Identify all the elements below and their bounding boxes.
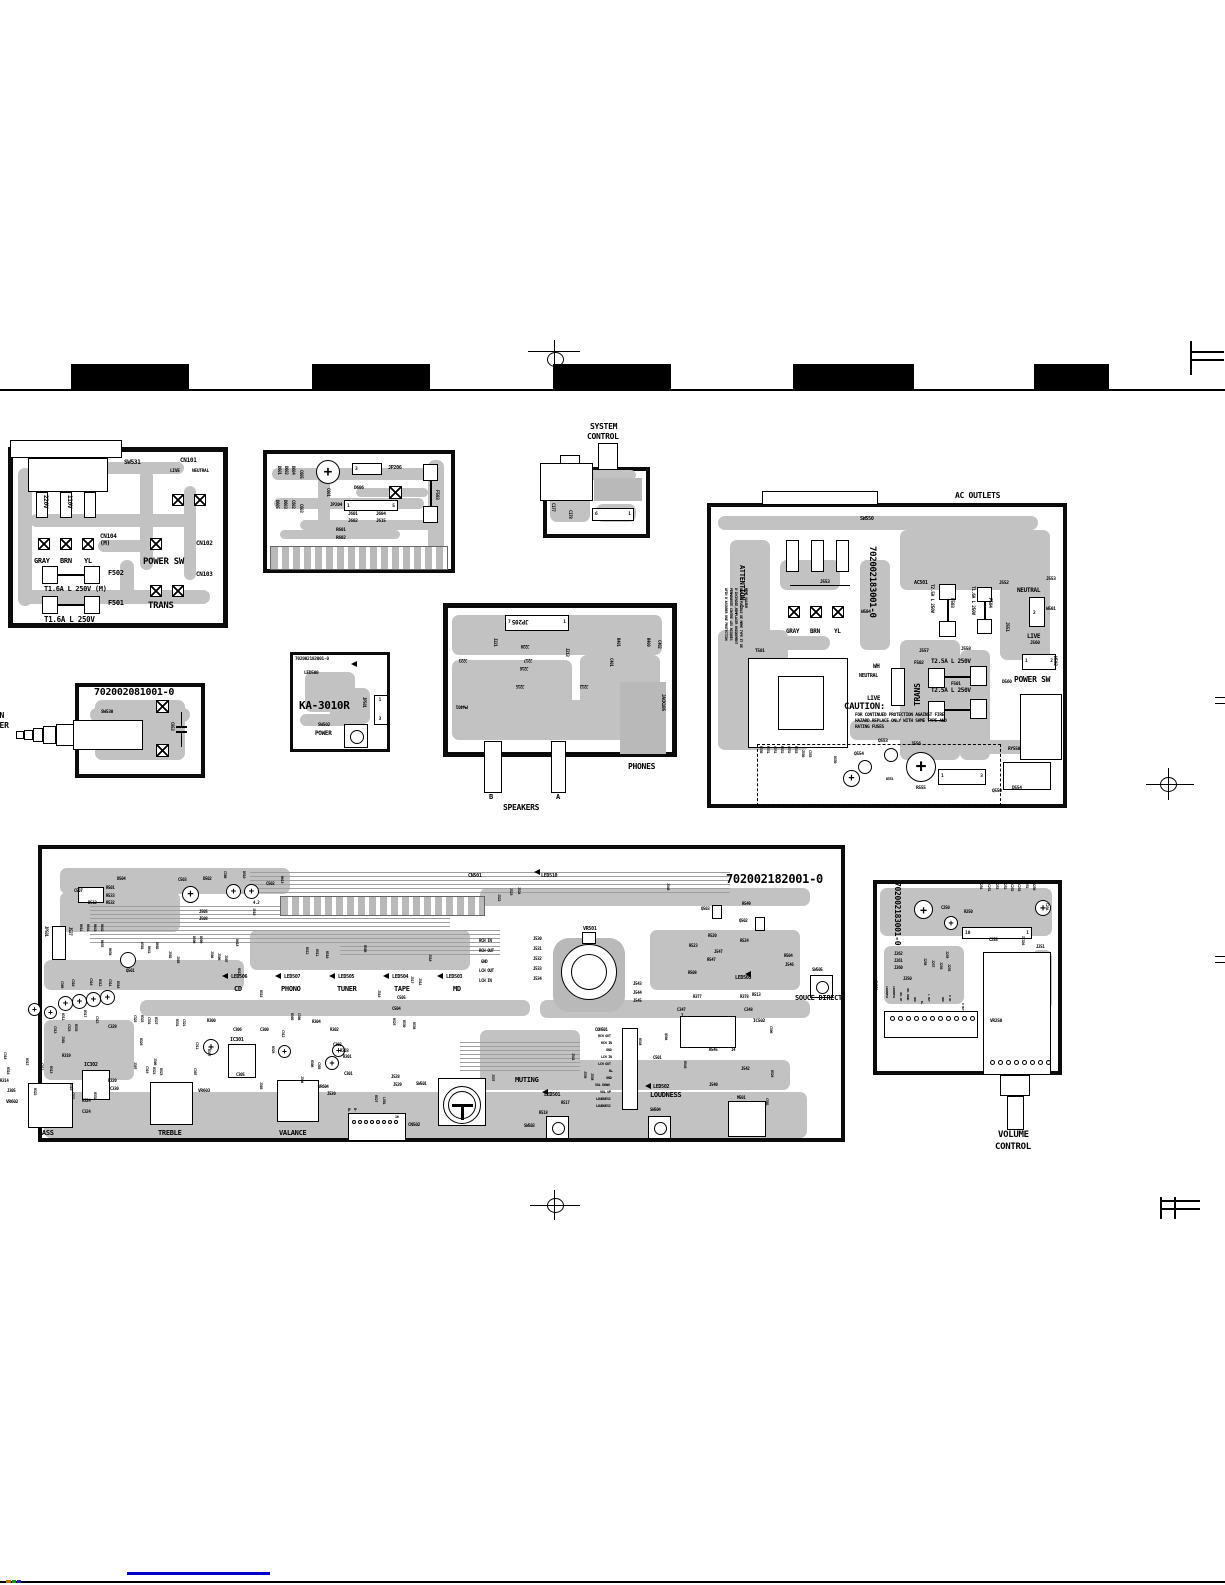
- component-label: R323: [159, 1068, 163, 1075]
- trace-bus: [460, 1042, 580, 1072]
- component-label: Q502: [739, 919, 747, 923]
- component-label: R550: [759, 746, 763, 753]
- circle-outline: [571, 954, 607, 990]
- component-label: JP501: [362, 697, 366, 708]
- component-label: J527: [68, 927, 72, 935]
- component-label: GND: [913, 997, 916, 1002]
- component-label: R523: [689, 944, 697, 948]
- component-label: R401: [616, 638, 620, 646]
- component-label: R303: [340, 1049, 348, 1053]
- mounting-pad-icon: [832, 606, 844, 618]
- component-label: CN103: [196, 572, 213, 578]
- component-label: J532: [533, 957, 541, 961]
- connector-pin-number: 1: [1025, 659, 1028, 664]
- component-label: POWER: [315, 731, 332, 737]
- component-outline: [762, 491, 878, 505]
- component-label: YL: [84, 558, 92, 565]
- component-label: T1.6A L 250V (M): [44, 586, 107, 593]
- capacitor-icon: +: [100, 990, 115, 1005]
- capacitor-icon: +: [226, 884, 241, 899]
- connector-pin-number: 6: [595, 512, 598, 517]
- mounting-pad-icon: [156, 700, 169, 713]
- component-outline: [891, 668, 905, 706]
- led-icon: [222, 973, 228, 979]
- mounting-pad-icon: [150, 585, 162, 597]
- component-label: D601: [277, 466, 281, 474]
- component-label: SW550: [860, 517, 874, 522]
- component-label: F501: [108, 600, 124, 607]
- component-outline: [84, 566, 100, 584]
- edge-connector: [270, 546, 448, 570]
- component-outline: [56, 724, 74, 746]
- component-label: J223: [459, 658, 467, 662]
- label-phones: PHONES: [628, 763, 655, 771]
- component-label: J514: [418, 978, 422, 985]
- component-label: J516: [377, 990, 381, 997]
- component-label: R602: [155, 942, 159, 949]
- component-label: J541: [571, 1053, 575, 1060]
- component-outline: [970, 699, 987, 719]
- component-outline: [423, 464, 438, 481]
- component-label: B+: [920, 1001, 923, 1004]
- component-label: R546: [683, 1061, 687, 1068]
- component-label: VOL DOWN: [595, 1084, 609, 1088]
- component-label: LED510: [541, 874, 557, 879]
- component-label: R526: [770, 1070, 774, 1077]
- component-label: J529: [393, 1083, 401, 1087]
- component-label: D501: [140, 942, 144, 949]
- board-number: 702002081001-0: [94, 688, 174, 698]
- component-label: LIVE: [1027, 634, 1040, 640]
- mounting-pad-icon: [389, 486, 402, 499]
- component-label: CN102: [196, 541, 213, 547]
- component-label: LOUDNESS: [885, 986, 888, 998]
- model-name: KA-3010R: [299, 700, 350, 711]
- connector-pin-number: 3: [355, 467, 358, 472]
- component-label: D560: [1002, 681, 1012, 686]
- component-label: R306: [310, 1060, 314, 1067]
- led-icon: [329, 973, 335, 979]
- pin-dot: [364, 1120, 368, 1124]
- component-label: J253: [995, 882, 999, 889]
- component-label: LED501: [544, 1093, 560, 1098]
- copper-trace: [30, 514, 192, 527]
- component-label: J531: [533, 947, 541, 951]
- component-label: R509: [363, 945, 367, 952]
- board-number: 702002183001-0: [893, 882, 901, 945]
- component-label: R OUT: [961, 1003, 964, 1011]
- component-label: R511: [315, 949, 319, 956]
- copper-trace: [318, 476, 330, 538]
- pin-dot: [388, 1120, 392, 1124]
- connector: 3: [352, 463, 382, 475]
- rule-line: [1160, 1208, 1200, 1210]
- push-switch: [648, 1116, 671, 1139]
- component-label: R636: [108, 948, 112, 955]
- circle-outline: [858, 760, 872, 774]
- component-label: JP501: [44, 926, 48, 937]
- component-label: J217: [524, 658, 532, 662]
- component-label: Q550: [992, 790, 1002, 795]
- component-label: (M): [100, 541, 110, 547]
- component-label: JP204: [330, 504, 342, 509]
- rule-line: [127, 1572, 270, 1575]
- component-label: R311: [61, 1013, 65, 1020]
- component-label: W502: [1052, 656, 1057, 666]
- component-label: J537: [491, 1074, 495, 1081]
- rule-line: [58, 574, 84, 576]
- rule-line: [12, 1580, 16, 1583]
- led-icon: [383, 973, 389, 979]
- component-label: 7: [681, 1014, 683, 1018]
- component-label: J558: [961, 648, 971, 653]
- component-label: IC301: [230, 1038, 244, 1043]
- component-label: C329: [108, 1025, 116, 1029]
- component-label: R251: [1025, 881, 1029, 888]
- component-label: R516: [259, 990, 263, 997]
- label-bass: BASS: [38, 1130, 54, 1137]
- component-outline: [10, 440, 122, 458]
- capacitor-icon: +: [28, 1003, 41, 1016]
- component-label: R400: [646, 638, 650, 646]
- connector: 13: [938, 769, 986, 785]
- component-label: R538: [412, 1022, 416, 1029]
- component-label: C506: [769, 1026, 773, 1033]
- component-label: J528: [391, 1075, 399, 1079]
- component-label: J216: [520, 666, 528, 670]
- component-label: J262: [894, 952, 902, 956]
- copper-trace: [770, 636, 830, 650]
- component-outline: [1000, 1075, 1030, 1096]
- component-label: D250: [1032, 883, 1036, 890]
- component-label: 4.2: [253, 901, 259, 905]
- rule-line: [1190, 341, 1192, 375]
- connector-pin-number: 1: [628, 512, 631, 517]
- component-outline: [582, 932, 596, 944]
- component-label: C314: [108, 979, 112, 986]
- rule-line: [6, 1580, 11, 1583]
- component-label: R641: [147, 946, 151, 953]
- component-label: NEUTRAL: [1017, 588, 1040, 594]
- component-label: R314: [0, 1079, 8, 1083]
- component-label: RCH OUT: [479, 949, 494, 953]
- component-label: R518: [539, 1111, 547, 1115]
- component-label: C402: [657, 640, 661, 648]
- component-label: LCH OUT: [479, 969, 494, 973]
- component-label: R301: [343, 1055, 351, 1059]
- caution-line-1: FOR CONTINUED PROTECTION AGAINST FIRE: [855, 714, 944, 719]
- component-label: LED505: [735, 976, 751, 981]
- label-volume-control: VOLUME: [998, 1131, 1029, 1140]
- component-label: R327: [154, 1017, 158, 1024]
- component-label: C301: [344, 1072, 352, 1076]
- component-outline: [680, 1016, 736, 1048]
- mounting-pad-icon: [788, 606, 800, 618]
- component-label: C317: [40, 1063, 44, 1070]
- component-label: C502: [266, 882, 274, 886]
- component-label: D554: [1012, 787, 1022, 792]
- component-label: C552: [787, 746, 791, 753]
- component-label: C331: [147, 1017, 151, 1024]
- component-label: A: [556, 794, 560, 801]
- rule-line: [554, 340, 555, 380]
- component-label: C325: [133, 1015, 137, 1022]
- component-label: J524: [517, 887, 521, 894]
- component-label: R304: [312, 1020, 320, 1024]
- component-label: SW501: [416, 1082, 427, 1086]
- component-label: CON501: [595, 1028, 608, 1032]
- component-outline: [43, 726, 56, 744]
- component-label: CN101: [180, 458, 197, 464]
- label-trans: TRANS: [148, 602, 174, 611]
- component-label: R527: [374, 1095, 378, 1102]
- component-label: CONTROL: [587, 433, 619, 441]
- component-label: R525: [392, 1018, 396, 1025]
- component-label: T2.5A L 250V: [929, 584, 934, 613]
- pin-dot: [990, 1060, 995, 1065]
- component-outline: [928, 668, 945, 688]
- component-label: C551: [773, 746, 777, 753]
- component-label: J551: [1004, 622, 1009, 632]
- component-label: R329: [271, 1046, 275, 1053]
- component-outline: [73, 720, 143, 750]
- pin-dot: [954, 1016, 959, 1021]
- mounting-pad-icon: [60, 538, 72, 550]
- component-label: GND: [481, 960, 487, 964]
- component-outline: [84, 596, 100, 614]
- section-md: MD: [453, 986, 461, 993]
- pin-dot: [1038, 1060, 1043, 1065]
- component-label: C254: [1045, 903, 1049, 910]
- component-label: 16: [395, 1116, 399, 1120]
- component-label: J544: [633, 991, 641, 995]
- mounting-pad-icon: [150, 538, 162, 550]
- component-label: J213: [565, 648, 569, 656]
- pin-dot: [930, 1016, 935, 1021]
- component-label: C330: [110, 1087, 118, 1091]
- capacitor-icon: +: [843, 770, 860, 787]
- component-label: POWER: [0, 722, 9, 730]
- component-label: C250: [941, 906, 949, 910]
- component-outline: [786, 540, 799, 572]
- component-label: J533: [533, 967, 541, 971]
- component-label: R333: [74, 1024, 78, 1031]
- component-label: J538: [590, 1073, 594, 1080]
- component-label: R635: [100, 940, 104, 947]
- component-label: Q553: [878, 740, 888, 745]
- component-outline: [84, 492, 96, 518]
- component-label: W504: [861, 611, 871, 616]
- pin-dot: [938, 1016, 943, 1021]
- component-label: M501: [737, 1096, 745, 1100]
- component-label: CONTROL: [995, 1143, 1031, 1152]
- connector-pin-number: 5: [392, 504, 395, 509]
- connector-pin-number: 3: [379, 717, 382, 722]
- component-label: RCH IN: [479, 939, 492, 943]
- component-label: R530: [402, 1020, 406, 1027]
- component-outline: [24, 730, 33, 740]
- push-switch: [344, 724, 368, 748]
- component-label: SW503: [524, 1124, 535, 1128]
- label-treble: TREBLE: [158, 1130, 182, 1137]
- component-label: C316: [89, 978, 93, 985]
- component-label: C251: [987, 884, 991, 891]
- component-outline: [1029, 597, 1045, 627]
- component-outline: [28, 458, 108, 492]
- component-label: VR501: [583, 927, 597, 932]
- component-outline: [939, 621, 956, 637]
- pin-dot: [376, 1120, 380, 1124]
- component-label: LOUDNESS: [892, 986, 895, 998]
- component-outline: [1020, 694, 1062, 760]
- component-label: D606: [354, 487, 364, 492]
- component-label: B-: [353, 1108, 357, 1112]
- rule-line: [1190, 359, 1224, 361]
- component-label: C347: [677, 1008, 685, 1012]
- component-label: C300: [260, 1028, 268, 1032]
- component-label: J306: [153, 1058, 157, 1065]
- component-outline: [33, 728, 43, 742]
- component-label: J215: [516, 684, 524, 688]
- component-label: J255: [947, 964, 951, 971]
- component-label: J252: [1003, 882, 1007, 889]
- component-label: J212: [580, 684, 588, 688]
- component-label: YL: [834, 629, 841, 635]
- rule-line: [528, 351, 580, 352]
- component-label: LED507: [284, 975, 300, 980]
- component-label: C504: [392, 1007, 400, 1011]
- component-label: J504: [210, 951, 214, 958]
- component-label: R320: [108, 1079, 116, 1083]
- capacitor-icon: +: [278, 1045, 291, 1058]
- component-label: R548: [638, 1038, 642, 1045]
- rule-line: [181, 712, 182, 726]
- component-label: SW504: [650, 1108, 661, 1112]
- mounting-pad-icon: [810, 606, 822, 618]
- component-label: R501: [106, 886, 114, 890]
- component-label: L OUT: [927, 994, 930, 1002]
- component-label: B+: [347, 1108, 351, 1112]
- component-label: C318: [3, 1052, 7, 1059]
- component-label: J259: [945, 951, 949, 958]
- pin-dot: [962, 1016, 967, 1021]
- component-label: D504: [117, 877, 125, 881]
- rule-line: [0, 389, 1225, 391]
- component-label: AFIN D'ASSURER UNE PROTECTION: [724, 588, 728, 640]
- pin-dot: [1046, 1060, 1051, 1065]
- component-label: VR250: [990, 1020, 1002, 1025]
- rule-line: [1215, 962, 1225, 963]
- component-label: J508: [199, 917, 207, 921]
- component-label: B+: [609, 1070, 613, 1074]
- mounting-pad-icon: [172, 494, 184, 506]
- pin-dot: [906, 1016, 911, 1021]
- component-label: GRAY: [786, 629, 799, 635]
- component-label: C310: [71, 979, 75, 986]
- rule-line: [461, 1104, 464, 1120]
- led-icon: [534, 869, 540, 875]
- component-outline: [42, 596, 58, 614]
- capacitor-icon: +: [58, 996, 73, 1011]
- component-label: C313: [53, 1026, 57, 1033]
- component-label: R332: [93, 1092, 97, 1099]
- component-label: J522: [497, 894, 501, 901]
- pin-dot: [1014, 1060, 1019, 1065]
- component-label: J502: [168, 951, 172, 958]
- mounting-pad-icon: [156, 744, 169, 757]
- component-label: J250: [903, 977, 911, 981]
- component-label: R512: [305, 947, 309, 954]
- component-outline: [778, 676, 824, 730]
- component-outline: [977, 619, 992, 634]
- component-label: IC502: [753, 1020, 765, 1025]
- label-speakers: SPEAKERS: [503, 804, 539, 812]
- mounting-pad-icon: [172, 585, 184, 597]
- component-label: CN250: [873, 980, 877, 991]
- component-label: GRAY: [34, 558, 50, 565]
- led-icon: [437, 973, 443, 979]
- component-label: R305: [290, 1013, 294, 1020]
- component-label: C501: [653, 1056, 661, 1060]
- component-label: R618: [235, 939, 239, 946]
- component-label: LOUDNESS: [596, 1105, 610, 1109]
- component-label: R533: [106, 894, 114, 898]
- circle-outline: [884, 748, 898, 762]
- connector: 13: [374, 695, 388, 725]
- registration-ellipse: [547, 352, 564, 367]
- component-label: J507: [224, 955, 228, 962]
- component-label: F504: [987, 598, 992, 608]
- component-label: C323: [67, 1024, 71, 1031]
- registration-bar: [71, 364, 189, 390]
- component-label: J506: [217, 953, 221, 960]
- component-label: C953: [170, 722, 174, 730]
- switch-button-icon: [350, 730, 364, 744]
- switch-button-icon: [552, 1122, 566, 1136]
- component-label: T2.5A L 250V: [931, 659, 971, 665]
- capacitor-icon: +: [244, 884, 259, 899]
- connector-pin-number: 1: [941, 774, 944, 779]
- component-label: R324: [82, 1099, 90, 1103]
- rule-line: [945, 676, 970, 678]
- caution-heading: CAUTION:: [844, 703, 885, 712]
- board-number-main: 702002182001-0: [726, 873, 823, 885]
- component-label: J546: [785, 963, 793, 967]
- led-icon: [645, 1083, 651, 1089]
- component-label: J545: [633, 999, 641, 1003]
- component-label: LCH IN: [601, 1056, 612, 1060]
- component-label: T2.5A L 250V: [931, 688, 971, 694]
- component-label: R250: [964, 910, 972, 914]
- component-label: JACK105: [660, 694, 665, 711]
- component-label: C253: [1017, 884, 1021, 891]
- potentiometer: [277, 1080, 319, 1122]
- component-outline: [712, 905, 722, 919]
- component-label: J251: [1036, 945, 1044, 949]
- rule-line: [58, 604, 84, 606]
- component-outline: [811, 540, 824, 572]
- rule-line: [1190, 351, 1224, 353]
- component-label: J523: [509, 888, 513, 895]
- component-label: R513: [752, 993, 760, 997]
- component-label: J534: [533, 977, 541, 981]
- component-label: SW531: [124, 460, 141, 466]
- component-outline: [970, 666, 987, 686]
- push-switch: [546, 1116, 569, 1139]
- caution-line-3: RATING FUSES: [855, 726, 884, 731]
- component-label: T1.6A L 250V: [44, 616, 95, 624]
- component-label: R532: [106, 901, 114, 905]
